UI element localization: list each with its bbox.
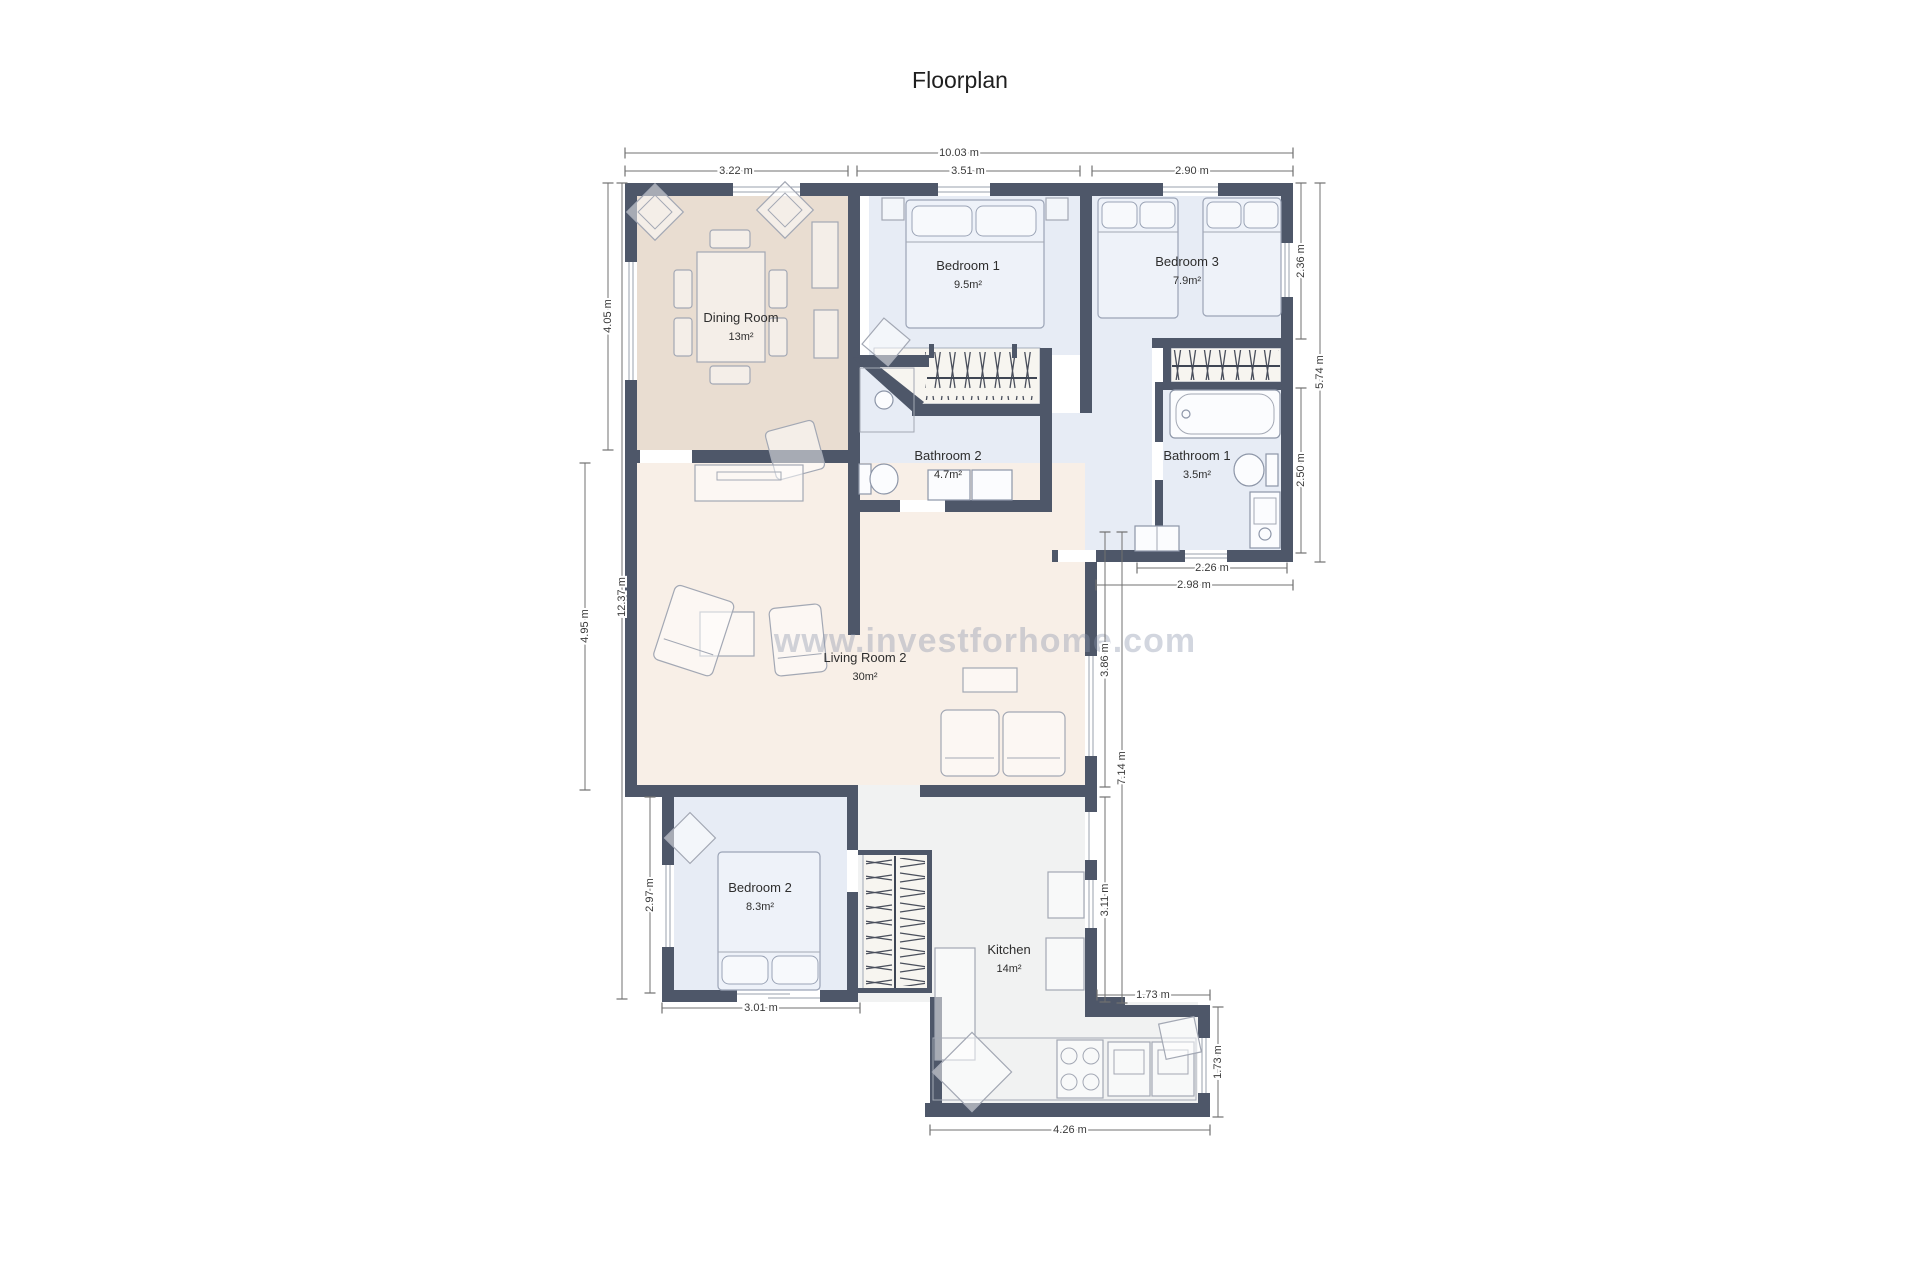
window-living-east <box>1085 656 1097 756</box>
dim-bedroom2-width: 3.01 m <box>662 1002 860 1014</box>
armchair <box>941 710 999 776</box>
dim-bathroom1-width: 2.26 m <box>1137 562 1287 574</box>
dining-chair <box>674 318 692 356</box>
window-bedroom1-top <box>938 183 990 196</box>
dim-dining-height: 4.05 m <box>602 183 614 450</box>
pillow <box>1102 202 1137 228</box>
svg-text:4.7m²: 4.7m² <box>934 469 962 481</box>
svg-text:30m²: 30m² <box>852 671 877 683</box>
svg-text:14m²: 14m² <box>996 963 1021 975</box>
dim-bedroom1-width: 3.51 m <box>857 165 1080 177</box>
sink-drain <box>1259 528 1271 540</box>
svg-text:2.26 m: 2.26 m <box>1195 562 1229 574</box>
sideboard <box>812 222 838 288</box>
svg-text:Dining Room: Dining Room <box>703 310 778 325</box>
svg-text:2.98 m: 2.98 m <box>1177 579 1211 591</box>
sink <box>972 470 1012 500</box>
svg-text:3.86 m: 3.86 m <box>1099 643 1111 677</box>
appliance <box>1159 1017 1202 1060</box>
door-bathroom1 <box>1155 442 1163 480</box>
svg-text:Bathroom 1: Bathroom 1 <box>1163 448 1230 463</box>
dim-kitchen-east: 3.11 m <box>1099 797 1111 1002</box>
dim-kitchen-width: 4.26 m <box>930 1124 1210 1136</box>
svg-text:4.05 m: 4.05 m <box>602 299 614 333</box>
closet-bedroom1-hatch <box>925 352 1035 400</box>
nightstand <box>1046 198 1068 220</box>
dim-bedroom3-width: 2.90 m <box>1092 165 1293 177</box>
corridor-threshold <box>855 785 920 802</box>
dim-bedroom3-height: 2.36 m <box>1295 183 1307 339</box>
svg-text:3.11 m: 3.11 m <box>1099 884 1111 917</box>
svg-text:7.14 m: 7.14 m <box>1116 751 1128 785</box>
svg-text:Bathroom 2: Bathroom 2 <box>914 448 981 463</box>
dim-living-height: 4.95 m <box>579 463 591 790</box>
dining-table <box>697 252 765 362</box>
svg-text:3.51 m: 3.51 m <box>951 165 985 177</box>
stove <box>1057 1040 1103 1098</box>
svg-text:12.37 m: 12.37 m <box>616 577 628 617</box>
dim-hall-bathroom-width: 2.98 m <box>1096 579 1293 591</box>
coffee-table <box>963 668 1017 692</box>
dining-chair <box>710 230 750 248</box>
svg-text:8.3m²: 8.3m² <box>746 901 774 913</box>
svg-text:2.36 m: 2.36 m <box>1295 244 1307 278</box>
svg-text:7.9m²: 7.9m² <box>1173 275 1201 287</box>
door-kitchen-east <box>1085 812 1097 860</box>
toilet-tank <box>1266 454 1278 486</box>
bathtub-faucet <box>1182 410 1190 418</box>
floorplan-drawing: Floorplan <box>0 0 1920 1280</box>
svg-text:Kitchen: Kitchen <box>987 942 1030 957</box>
fridge <box>1048 872 1084 918</box>
svg-text:2.90 m: 2.90 m <box>1175 165 1209 177</box>
dining-chair <box>710 366 750 384</box>
floorplan-page: Floorplan <box>0 0 1920 1280</box>
svg-text:1.73 m: 1.73 m <box>1136 989 1170 1001</box>
pillow <box>1244 202 1278 228</box>
dim-dining-width: 3.22 m <box>625 165 848 177</box>
dim-step-height: 1.73 m <box>1212 1007 1224 1117</box>
dim-total-width: 10.03 m <box>625 147 1293 159</box>
svg-text:3.01 m: 3.01 m <box>744 1002 778 1014</box>
door-bedroom3 <box>1092 338 1152 348</box>
nightstand <box>882 198 904 220</box>
dim-bedroom2-height: 2.97 m <box>644 797 656 993</box>
svg-text:Bedroom 3: Bedroom 3 <box>1155 254 1219 269</box>
toilet-bowl <box>1234 454 1264 486</box>
svg-text:2.97 m: 2.97 m <box>644 878 656 912</box>
dim-right-total-height: 5.74 m <box>1314 183 1326 562</box>
dining-chair <box>674 270 692 308</box>
window-dining-left <box>625 262 637 380</box>
pillow <box>976 206 1036 236</box>
svg-text:2.50 m: 2.50 m <box>1295 453 1307 487</box>
door-bedroom2 <box>847 850 858 892</box>
toilet-bowl <box>870 464 898 494</box>
page-title: Floorplan <box>912 67 1008 93</box>
svg-text:13m²: 13m² <box>728 331 753 343</box>
window-bedroom3-right <box>1281 243 1293 297</box>
toilet-tank <box>859 464 871 494</box>
window-bathroom1-bottom <box>1185 550 1227 562</box>
tall-unit <box>1046 938 1084 990</box>
window-bedroom2-bottom <box>737 990 820 1002</box>
svg-text:1.73 m: 1.73 m <box>1212 1045 1224 1079</box>
shower-drain <box>875 391 893 409</box>
svg-text:4.95 m: 4.95 m <box>579 609 591 643</box>
dining-chair <box>769 270 787 308</box>
window-bedroom3-top <box>1163 183 1218 196</box>
door-bathroom2 <box>900 500 945 512</box>
cabinet <box>814 310 838 358</box>
svg-text:Bedroom 2: Bedroom 2 <box>728 880 792 895</box>
svg-text:5.74 m: 5.74 m <box>1314 355 1326 389</box>
armchair <box>1003 712 1065 776</box>
window-kitchen-east <box>1085 880 1097 928</box>
door-hall-living <box>1058 550 1096 562</box>
svg-text:Bedroom 1: Bedroom 1 <box>936 258 1000 273</box>
dim-bathroom1-height: 2.50 m <box>1295 388 1307 553</box>
door-dining-living <box>640 450 692 463</box>
pillow <box>1207 202 1241 228</box>
svg-text:10.03 m: 10.03 m <box>939 147 979 159</box>
dim-living-east: 3.86 m <box>1099 532 1111 787</box>
pillow <box>722 956 768 984</box>
tv-bench <box>695 465 803 501</box>
svg-text:3.22 m: 3.22 m <box>719 165 753 177</box>
svg-text:9.5m²: 9.5m² <box>954 279 982 291</box>
pillow <box>1140 202 1175 228</box>
pillow <box>772 956 818 984</box>
dim-east-total: 7.14 m <box>1116 532 1128 1003</box>
window-bedroom2-left <box>662 865 674 947</box>
svg-text:Living Room 2: Living Room 2 <box>823 650 906 665</box>
svg-text:4.26 m: 4.26 m <box>1053 1124 1087 1136</box>
svg-text:3.5m²: 3.5m² <box>1183 469 1211 481</box>
pillow <box>912 206 972 236</box>
